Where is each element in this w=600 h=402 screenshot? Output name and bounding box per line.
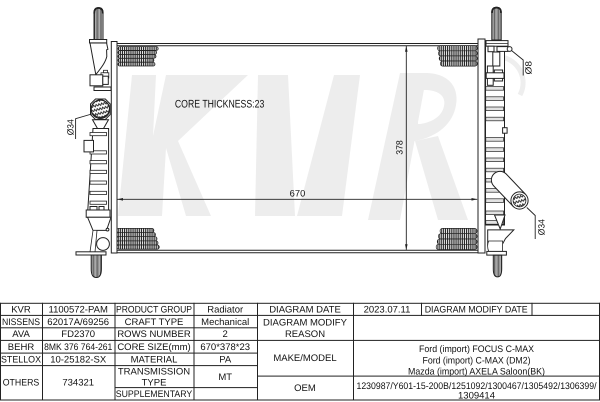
svg-text:378: 378 [395,140,405,155]
svg-text:734321: 734321 [62,378,94,389]
svg-text:DIAGRAM MODIFY: DIAGRAM MODIFY [263,318,348,329]
svg-text:ROWS NUMBER: ROWS NUMBER [117,329,191,340]
svg-text:CORE SIZE(mm): CORE SIZE(mm) [117,342,190,353]
svg-text:STELLOX: STELLOX [1,354,42,365]
svg-text:Ford (import) C-MAX (DM2): Ford (import) C-MAX (DM2) [423,355,531,366]
svg-text:1100572-PAM: 1100572-PAM [49,305,108,316]
svg-text:NISSENS: NISSENS [2,317,40,328]
svg-text:8MK 376 764-261: 8MK 376 764-261 [44,342,112,353]
svg-text:DIAGRAM MODIFY DATE: DIAGRAM MODIFY DATE [425,305,528,316]
svg-text:OEM: OEM [294,383,316,394]
svg-text:2: 2 [223,329,228,340]
svg-text:TRANSMISSION: TRANSMISSION [118,366,190,377]
svg-text:DIAGRAM DATE: DIAGRAM DATE [269,305,341,316]
svg-text:10-25182-SX: 10-25182-SX [50,354,107,365]
svg-text:Ford (import) FOCUS C-MAX: Ford (import) FOCUS C-MAX [419,344,535,355]
svg-text:BEHR: BEHR [8,342,35,353]
svg-text:CORE THICKNESS:23: CORE THICKNESS:23 [175,98,264,110]
svg-text:Radiator: Radiator [207,305,243,316]
svg-text:Ø34: Ø34 [66,119,76,135]
svg-text:1309414: 1309414 [458,391,495,402]
svg-text:MATERIAL: MATERIAL [131,354,178,365]
svg-text:MT: MT [218,372,232,383]
svg-text:2023.07.11: 2023.07.11 [364,305,411,316]
svg-text:FD2370: FD2370 [61,329,95,340]
svg-text:AVA: AVA [12,329,30,340]
svg-text:670*378*23: 670*378*23 [200,342,250,353]
svg-text:OTHERS: OTHERS [3,378,40,389]
svg-text:Mechanical: Mechanical [201,317,249,328]
svg-text:MAKE/MODEL: MAKE/MODEL [273,353,336,364]
svg-text:Ø8: Ø8 [524,61,534,75]
svg-text:670: 670 [290,189,306,199]
svg-text:SUPPLEMENTARY: SUPPLEMENTARY [116,389,193,400]
svg-text:Ø34: Ø34 [537,219,547,235]
svg-text:62017A/69256: 62017A/69256 [47,317,109,328]
svg-text:Mazda (import) AXELA Saloon(BK: Mazda (import) AXELA Saloon(BK) [408,367,545,378]
svg-text:REASON: REASON [285,329,325,340]
svg-text:TYPE: TYPE [142,377,167,388]
svg-text:PA: PA [219,354,232,365]
svg-text:PRODUCT GROUP: PRODUCT GROUP [116,305,192,316]
svg-text:KVR: KVR [11,305,31,316]
svg-text:CRAFT TYPE: CRAFT TYPE [125,317,184,328]
